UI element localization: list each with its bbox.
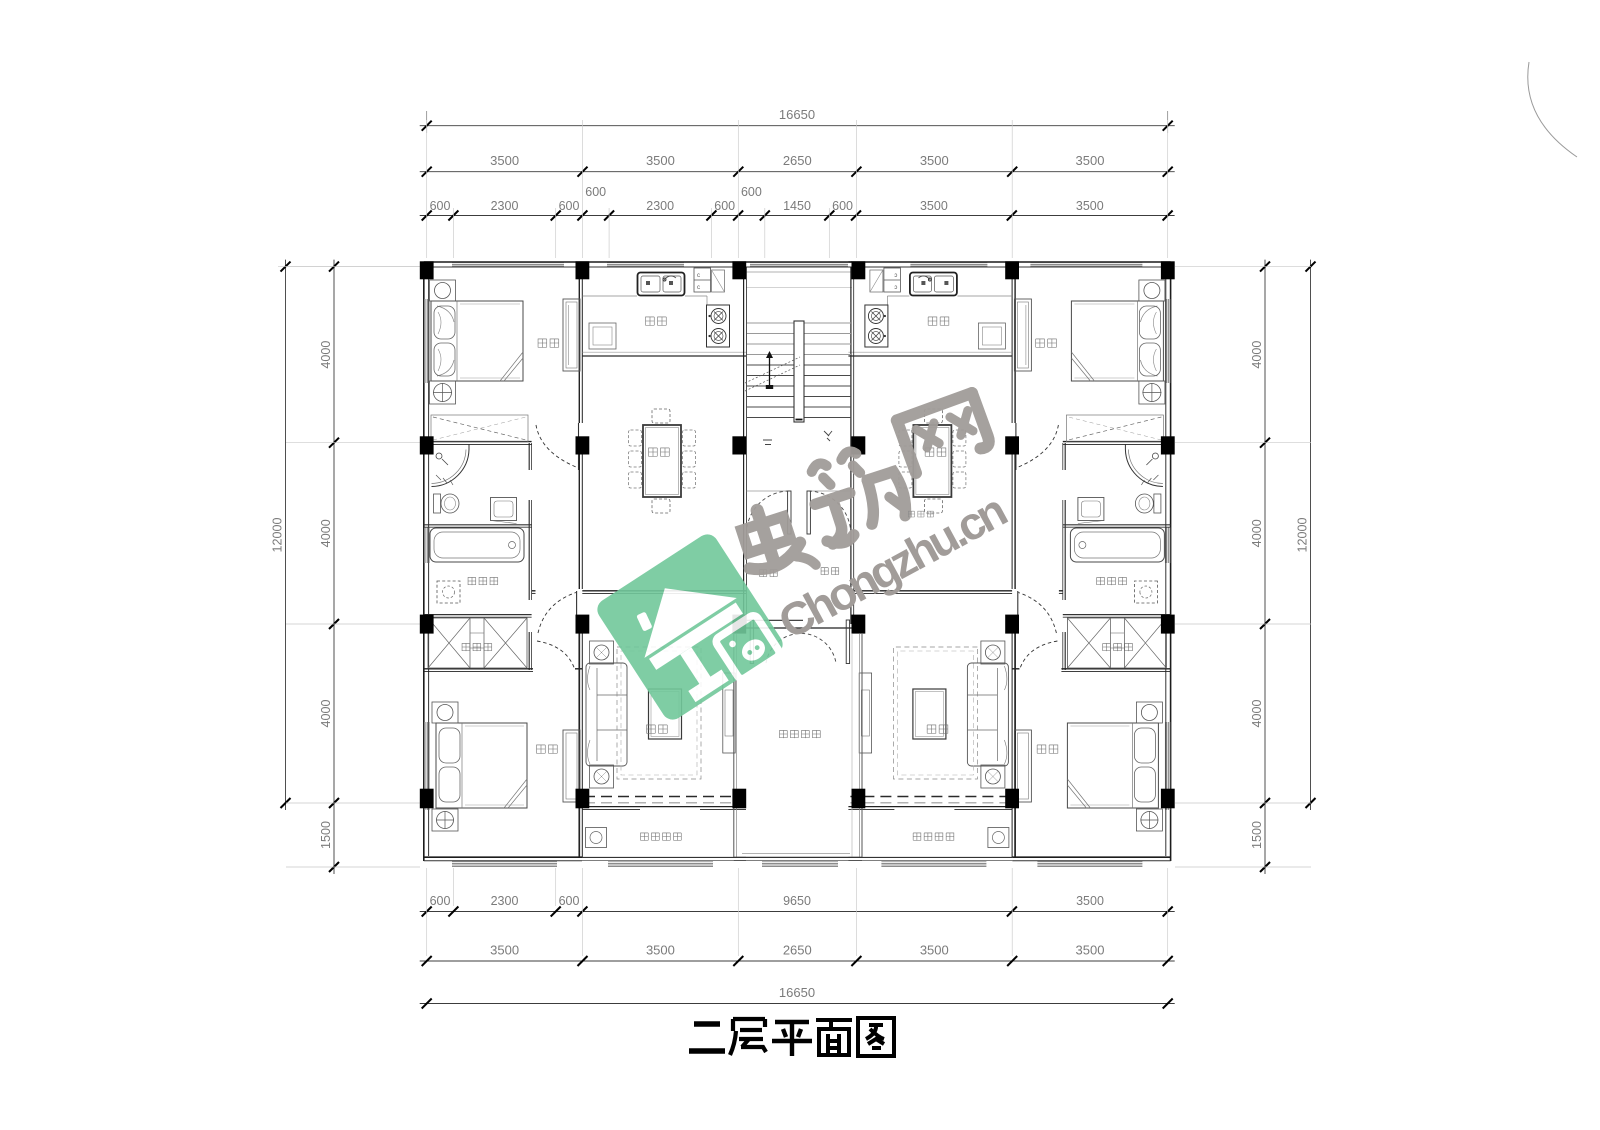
svg-text:3500: 3500 — [490, 153, 519, 168]
svg-text:4000: 4000 — [319, 519, 333, 547]
svg-text:16650: 16650 — [779, 985, 815, 1000]
svg-text:c: c — [697, 285, 700, 291]
svg-text:600: 600 — [832, 199, 853, 213]
svg-text:3500: 3500 — [646, 943, 675, 958]
svg-text:12000: 12000 — [271, 517, 285, 552]
svg-text:600: 600 — [430, 894, 451, 908]
svg-text:4000: 4000 — [1250, 699, 1264, 727]
svg-text:3500: 3500 — [646, 153, 675, 168]
svg-text:600: 600 — [585, 185, 606, 199]
svg-text:3500: 3500 — [1076, 943, 1105, 958]
svg-text:16650: 16650 — [779, 107, 815, 122]
svg-text:9650: 9650 — [783, 894, 811, 908]
svg-text:600: 600 — [559, 199, 580, 213]
svg-text:1500: 1500 — [319, 821, 333, 849]
svg-text:3500: 3500 — [920, 199, 948, 213]
svg-text:3500: 3500 — [1076, 199, 1104, 213]
svg-text:4000: 4000 — [319, 341, 333, 369]
svg-text:600: 600 — [430, 199, 451, 213]
svg-text:3500: 3500 — [920, 153, 949, 168]
svg-text:2300: 2300 — [491, 199, 519, 213]
svg-text:2650: 2650 — [783, 153, 812, 168]
svg-text:12000: 12000 — [1296, 517, 1310, 552]
svg-text:1500: 1500 — [1250, 821, 1264, 849]
svg-text:600: 600 — [559, 894, 580, 908]
svg-text:600: 600 — [714, 199, 735, 213]
svg-text:3500: 3500 — [1076, 894, 1104, 908]
svg-text:2300: 2300 — [491, 894, 519, 908]
svg-text:4000: 4000 — [1250, 341, 1264, 369]
svg-text:4000: 4000 — [1250, 519, 1264, 547]
svg-text:600: 600 — [741, 185, 762, 199]
svg-text:2300: 2300 — [646, 199, 674, 213]
svg-text:3500: 3500 — [490, 943, 519, 958]
svg-text:c: c — [697, 273, 700, 279]
svg-text:3500: 3500 — [920, 943, 949, 958]
svg-text:4000: 4000 — [319, 699, 333, 727]
svg-text:1450: 1450 — [783, 199, 811, 213]
svg-text:2650: 2650 — [783, 943, 812, 958]
svg-text:3500: 3500 — [1076, 153, 1105, 168]
